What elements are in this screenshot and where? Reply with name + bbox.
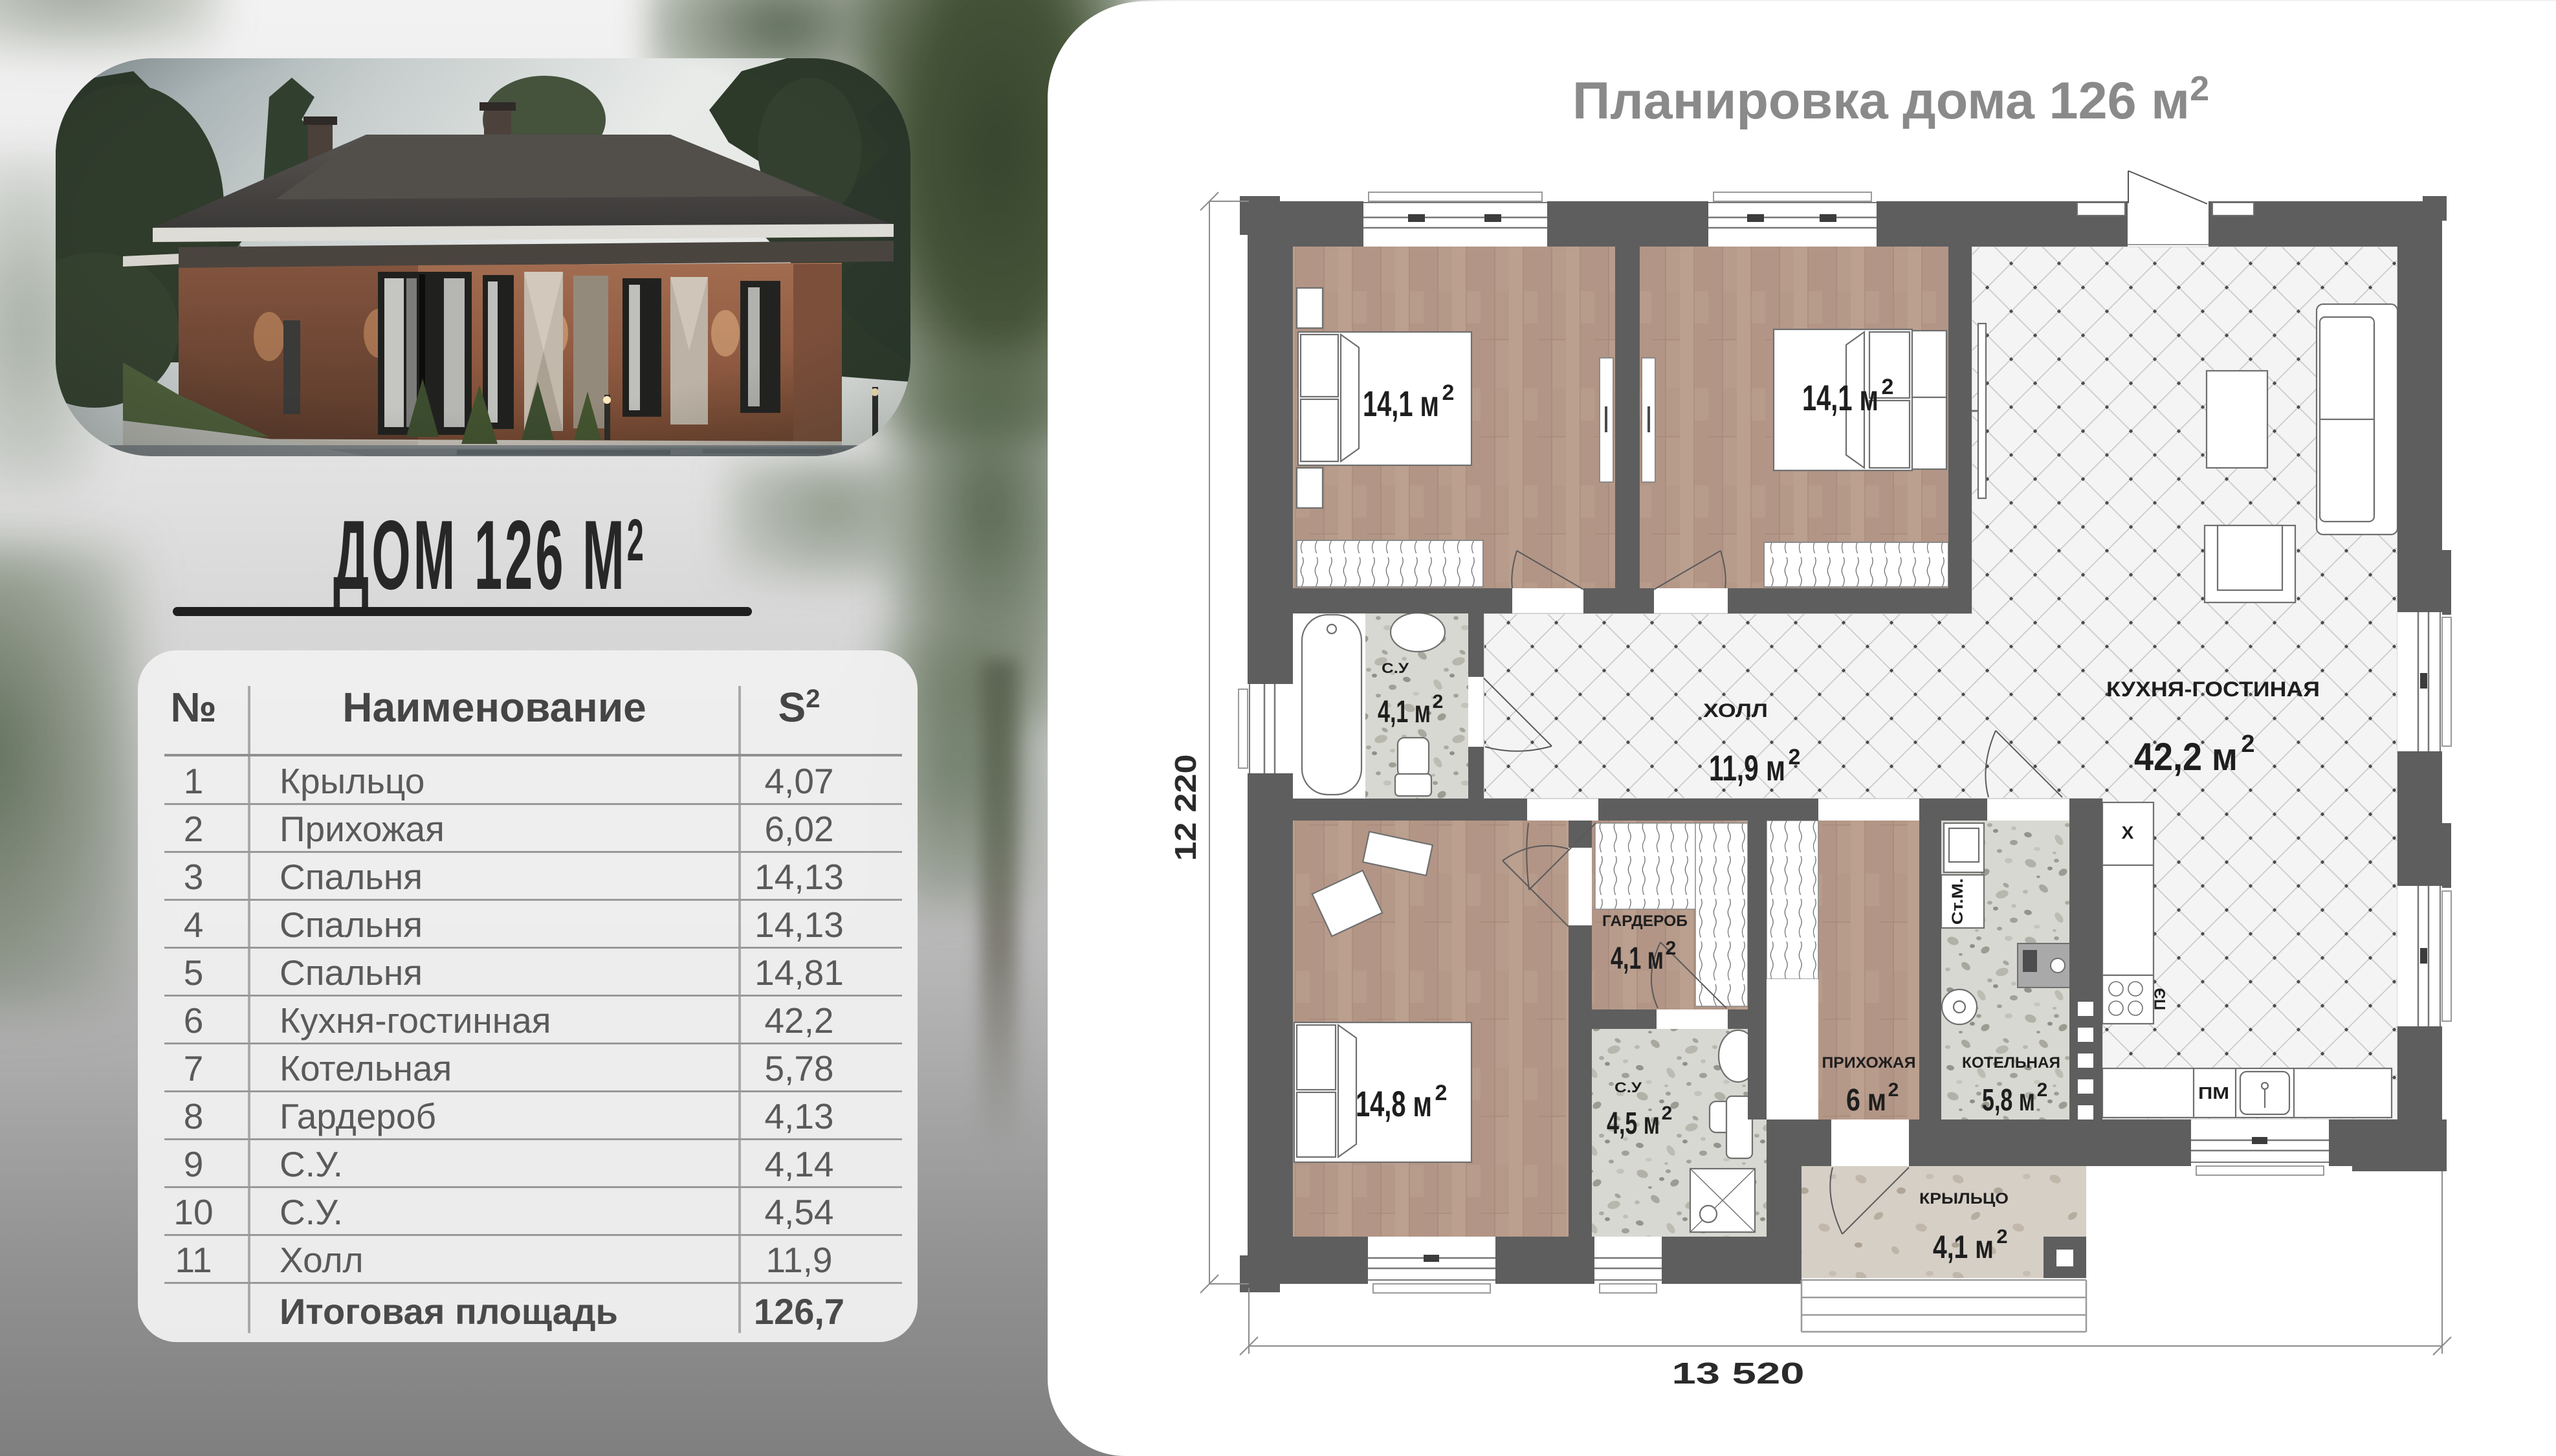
svg-text:С.У: С.У <box>1382 660 1409 676</box>
svg-text:КОТЕЛЬНАЯ: КОТЕЛЬНАЯ <box>1962 1054 2060 1072</box>
svg-text:2: 2 <box>2241 731 2254 758</box>
svg-text:2: 2 <box>1882 375 1894 399</box>
svg-text:ПРИХОЖАЯ: ПРИХОЖАЯ <box>1822 1054 1916 1072</box>
svg-text:Ст.М.: Ст.М. <box>1949 878 1967 925</box>
svg-text:4,5 м: 4,5 м <box>1607 1107 1660 1141</box>
svg-text:13 520: 13 520 <box>1672 1356 1805 1390</box>
svg-text:42,2 м: 42,2 м <box>2134 735 2238 778</box>
svg-text:КУХНЯ-ГОСТИНАЯ: КУХНЯ-ГОСТИНАЯ <box>2106 678 2320 701</box>
svg-text:ГАРДЕРОБ: ГАРДЕРОБ <box>1602 912 1688 930</box>
svg-text:2: 2 <box>1888 1079 1899 1101</box>
svg-text:Х: Х <box>2122 822 2134 843</box>
svg-text:4,1 м: 4,1 м <box>1611 942 1664 976</box>
svg-text:14,8 м: 14,8 м <box>1356 1083 1432 1124</box>
svg-text:2: 2 <box>1789 745 1801 769</box>
svg-text:14,1 м: 14,1 м <box>1363 383 1439 424</box>
svg-text:14,1 м: 14,1 м <box>1802 377 1878 418</box>
svg-text:ПЭ: ПЭ <box>2152 988 2169 1010</box>
svg-text:4,1 м: 4,1 м <box>1933 1229 1994 1265</box>
svg-text:2: 2 <box>1435 1081 1448 1105</box>
svg-text:2: 2 <box>1666 938 1677 959</box>
svg-text:ХОЛЛ: ХОЛЛ <box>1703 700 1768 722</box>
svg-text:2: 2 <box>1442 381 1455 405</box>
svg-text:12 220: 12 220 <box>1169 755 1202 861</box>
svg-text:ПМ: ПМ <box>2198 1083 2229 1103</box>
svg-text:6 м: 6 м <box>1846 1083 1886 1118</box>
svg-text:2: 2 <box>2037 1079 2048 1101</box>
svg-text:11,9 м: 11,9 м <box>1709 747 1785 788</box>
svg-text:КРЫЛЬЦО: КРЫЛЬЦО <box>1919 1190 2009 1208</box>
svg-text:2: 2 <box>1996 1225 2007 1248</box>
svg-text:2: 2 <box>1433 691 1444 712</box>
svg-text:2: 2 <box>1662 1103 1673 1124</box>
svg-text:5,8 м: 5,8 м <box>1982 1083 2035 1118</box>
svg-text:4,1 м: 4,1 м <box>1378 695 1431 729</box>
svg-text:С.У: С.У <box>1614 1079 1642 1096</box>
